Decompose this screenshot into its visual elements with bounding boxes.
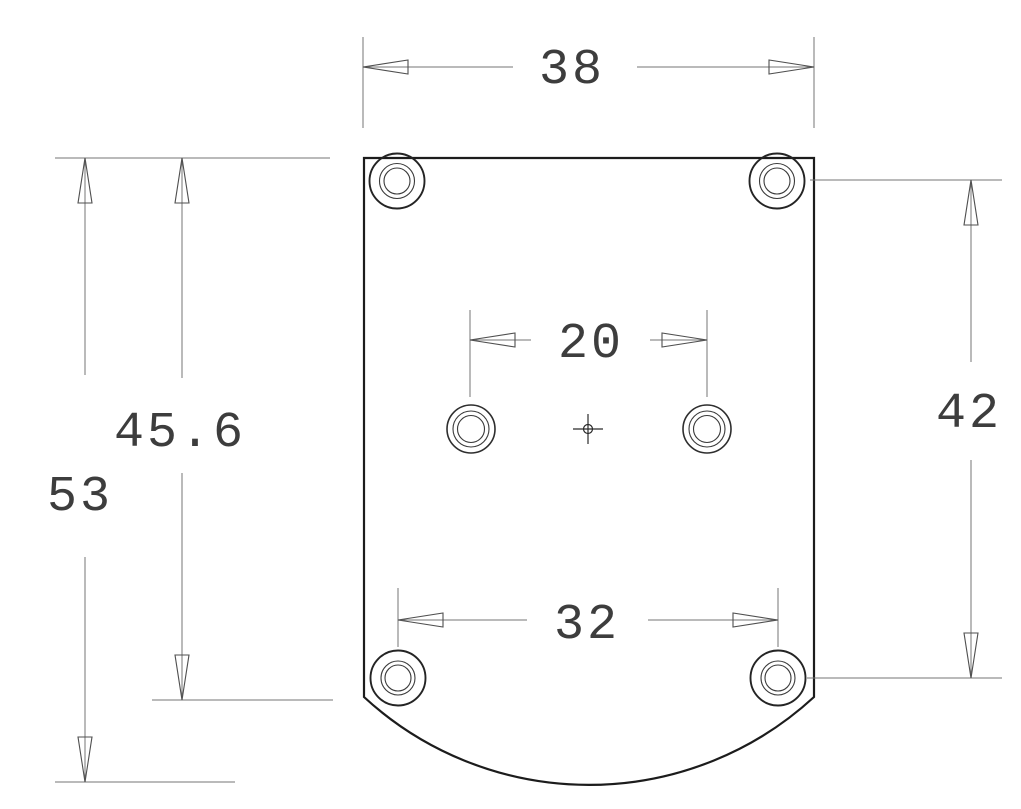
dim-label-hole-row-spacing: 42 [936, 386, 1002, 443]
center-hole-left [447, 405, 495, 453]
dim-center-hole-spacing: 20 [470, 310, 707, 397]
dim-label-center-hole-spacing: 20 [558, 316, 624, 373]
dim-side-height: 45.6 [114, 158, 333, 700]
drawing-canvas: 38 20 32 42 45.6 [0, 0, 1021, 809]
counterbore-hole-top-right [750, 154, 805, 209]
dimension-drawing: 38 20 32 42 45.6 [0, 0, 1021, 809]
dim-overall-width: 38 [363, 37, 814, 128]
counterbore-hole-bottom-right [751, 651, 806, 706]
plate-outline [364, 158, 814, 785]
counterbore-hole-bottom-left [371, 651, 426, 706]
dim-lower-hole-spacing: 32 [398, 588, 778, 654]
center-mark-icon [573, 414, 603, 444]
counterbore-hole-top-left [370, 154, 425, 209]
dim-label-overall-width: 38 [539, 42, 605, 99]
dim-label-overall-height: 53 [47, 469, 113, 526]
dim-label-side-height: 45.6 [114, 405, 246, 462]
dim-label-lower-hole-spacing: 32 [554, 597, 620, 654]
center-hole-right [683, 405, 731, 453]
dim-overall-height: 53 [47, 158, 235, 782]
dim-hole-row-spacing: 42 [807, 180, 1002, 678]
